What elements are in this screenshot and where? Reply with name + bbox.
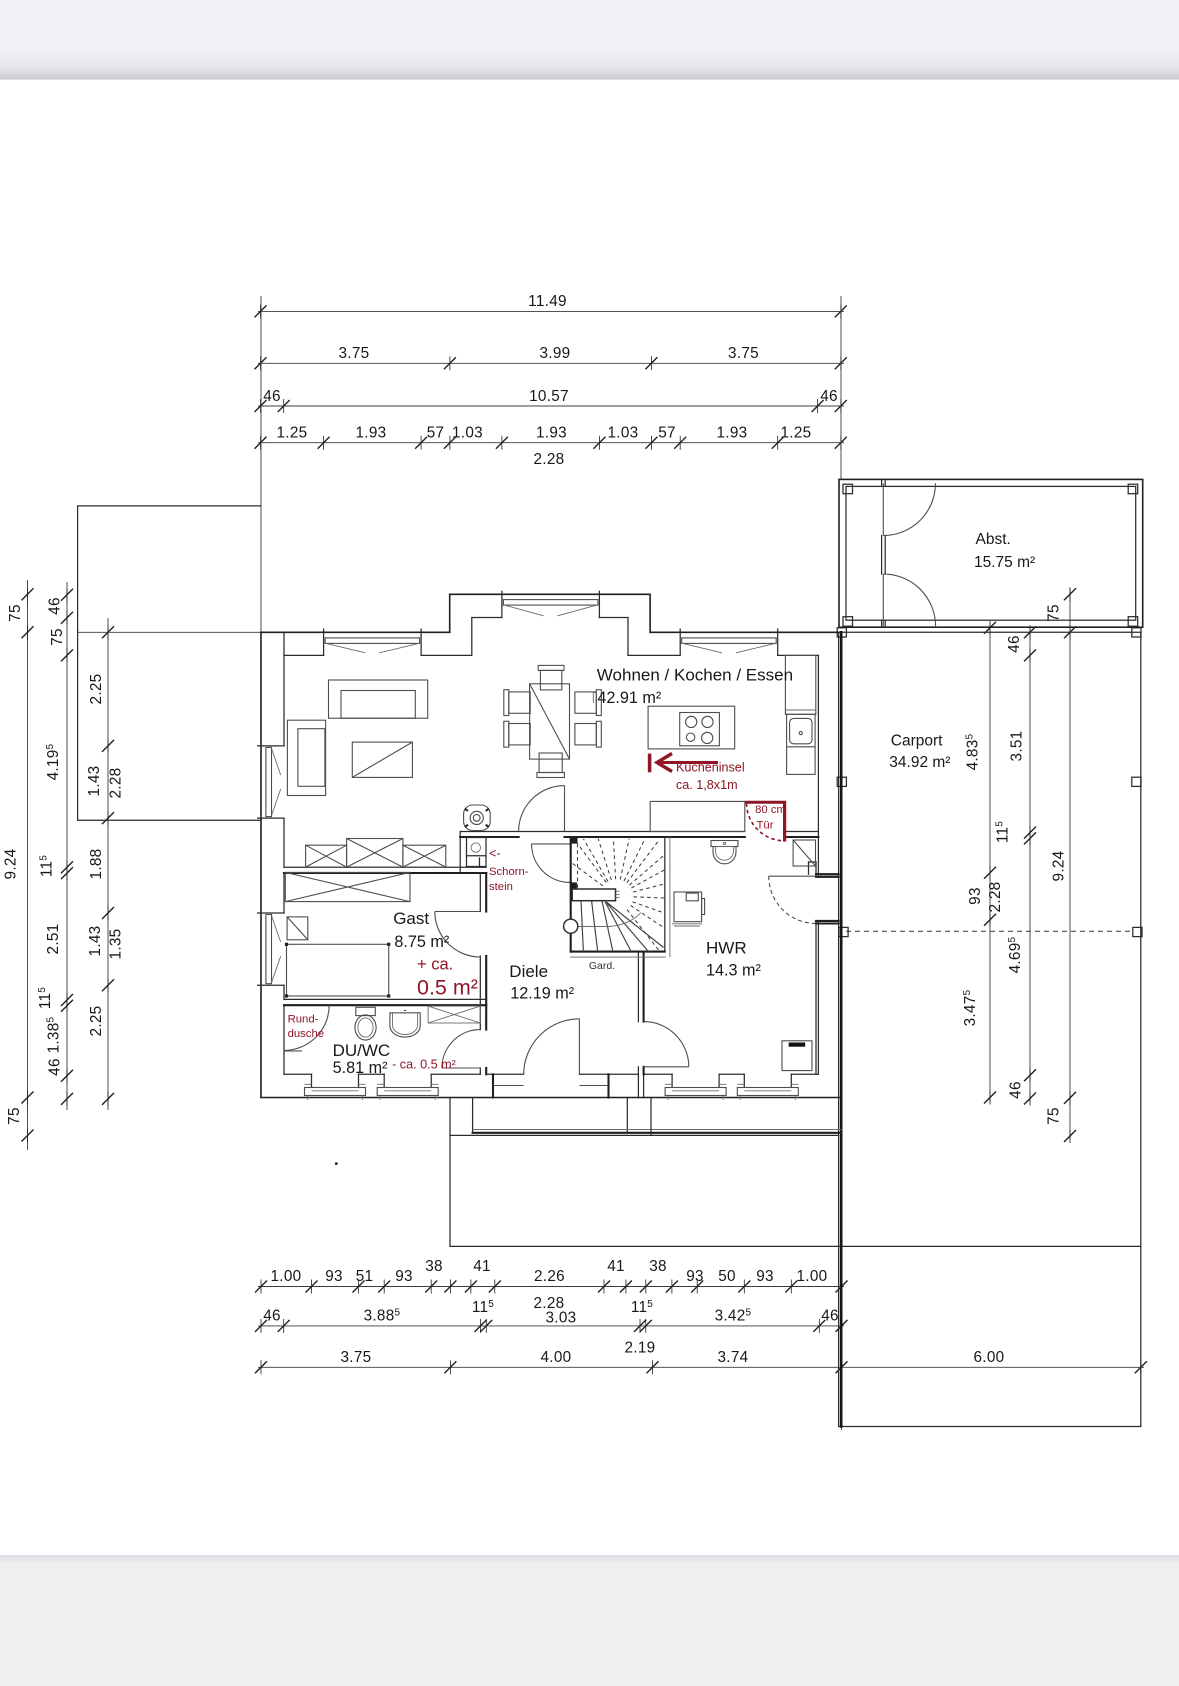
svg-text:75: 75 [1046,604,1063,622]
svg-text:Diele: Diele [509,962,548,981]
svg-text:115: 115 [631,1299,653,1316]
svg-text:41: 41 [607,1258,625,1275]
svg-text:115: 115 [472,1299,494,1316]
svg-text:93: 93 [756,1268,774,1285]
svg-text:3.75: 3.75 [341,1349,372,1366]
svg-text:93: 93 [686,1268,704,1285]
svg-text:Rund-: Rund- [288,1014,319,1026]
svg-text:9.24: 9.24 [1051,850,1068,881]
svg-text:Schorn-: Schorn- [489,866,529,878]
svg-text:1.93: 1.93 [717,425,748,442]
svg-text:1.93: 1.93 [536,425,567,442]
svg-text:46: 46 [1008,1081,1025,1099]
svg-text:38: 38 [425,1258,443,1275]
svg-text:93: 93 [325,1268,343,1285]
svg-text:2.28: 2.28 [987,882,1004,913]
svg-text:Wohnen / Kochen / Essen: Wohnen / Kochen / Essen [597,666,793,685]
svg-text:38: 38 [649,1258,667,1275]
svg-text:15.75 m²: 15.75 m² [974,554,1035,571]
svg-text:46: 46 [821,1308,839,1325]
svg-text:93: 93 [395,1268,413,1285]
svg-text:<-: <- [489,847,501,861]
svg-text:51: 51 [356,1268,374,1285]
svg-text:2.26: 2.26 [534,1268,565,1285]
svg-text:DU/WC: DU/WC [333,1041,391,1060]
svg-text:1.43: 1.43 [87,926,104,957]
svg-text:Gast: Gast [393,909,429,928]
svg-text:1.88: 1.88 [88,849,105,880]
svg-text:1.00: 1.00 [797,1268,828,1285]
svg-text:12.19 m²: 12.19 m² [510,985,574,1003]
svg-text:1.93: 1.93 [356,425,387,442]
svg-text:75: 75 [1046,1107,1063,1125]
svg-text:stein: stein [489,881,513,893]
svg-text:Tür: Tür [757,820,774,832]
svg-text:4.835: 4.835 [965,733,982,770]
svg-text:+ ca.: + ca. [417,956,453,974]
svg-text:4.00: 4.00 [541,1349,572,1366]
svg-text:34.92 m²: 34.92 m² [889,754,950,771]
svg-text:4.195: 4.195 [45,743,62,780]
svg-text:57: 57 [658,425,676,442]
svg-text:1.03: 1.03 [608,425,639,442]
svg-text:2.19: 2.19 [625,1340,656,1357]
svg-text:46: 46 [820,388,838,405]
svg-text:1.00: 1.00 [271,1268,302,1285]
svg-text:ca. 1,8x1m: ca. 1,8x1m [676,778,738,792]
svg-text:46: 46 [1006,635,1023,653]
svg-text:5.81 m²: 5.81 m² [333,1059,388,1077]
svg-text:1.03: 1.03 [452,425,483,442]
svg-text:6.00: 6.00 [974,1349,1005,1366]
svg-text:3.75: 3.75 [728,345,759,362]
svg-text:1.25: 1.25 [277,425,308,442]
svg-text:80 cm: 80 cm [755,804,786,816]
svg-text:Kücheninsel: Kücheninsel [676,761,745,775]
svg-text:Abst.: Abst. [976,531,1011,548]
svg-text:46: 46 [263,388,281,405]
svg-text:3.51: 3.51 [1009,731,1026,762]
svg-text:HWR: HWR [706,939,747,958]
svg-text:11.49: 11.49 [528,293,567,310]
svg-text:57: 57 [427,425,445,442]
svg-text:75: 75 [7,604,24,622]
svg-text:46: 46 [47,597,64,615]
svg-text:9.24: 9.24 [3,848,20,879]
svg-text:3.74: 3.74 [718,1349,749,1366]
svg-text:2.28: 2.28 [534,451,565,468]
svg-text:14.3 m²: 14.3 m² [706,962,761,980]
svg-text:41: 41 [473,1258,491,1275]
svg-text:1.35: 1.35 [108,929,125,960]
svg-text:46: 46 [263,1308,281,1325]
svg-text:115: 115 [995,821,1012,843]
svg-text:2.25: 2.25 [88,1006,105,1037]
svg-text:75: 75 [6,1107,23,1125]
svg-text:2.28: 2.28 [108,768,125,799]
svg-text:1.25: 1.25 [781,425,812,442]
svg-text:dusche: dusche [288,1028,324,1040]
svg-text:Carport: Carport [891,733,943,750]
svg-text:1.43: 1.43 [86,766,103,797]
svg-text:3.475: 3.475 [962,989,979,1026]
svg-text:0.5 m²: 0.5 m² [417,976,478,1000]
svg-text:3.885: 3.885 [364,1308,401,1325]
svg-text:75: 75 [49,628,66,646]
svg-text:50: 50 [718,1268,736,1285]
svg-text:46: 46 [47,1058,64,1076]
svg-text:3.99: 3.99 [540,345,571,362]
svg-text:2.51: 2.51 [45,924,62,955]
svg-text:1.385: 1.385 [46,1016,63,1053]
svg-text:115: 115 [39,855,56,877]
svg-text:115: 115 [37,987,54,1009]
svg-text:3.03: 3.03 [546,1310,577,1327]
svg-text:Gard.: Gard. [589,960,615,972]
svg-text:3.425: 3.425 [715,1308,752,1325]
svg-text:3.75: 3.75 [339,345,370,362]
svg-text:- ca. 0.5 m²: - ca. 0.5 m² [392,1058,456,1072]
svg-text:42.91 m²: 42.91 m² [597,689,661,707]
svg-text:2.25: 2.25 [88,674,105,705]
svg-text:4.695: 4.695 [1007,936,1024,973]
svg-text:93: 93 [967,887,984,905]
svg-text:8.75 m²: 8.75 m² [394,933,449,951]
svg-text:10.57: 10.57 [529,388,569,405]
